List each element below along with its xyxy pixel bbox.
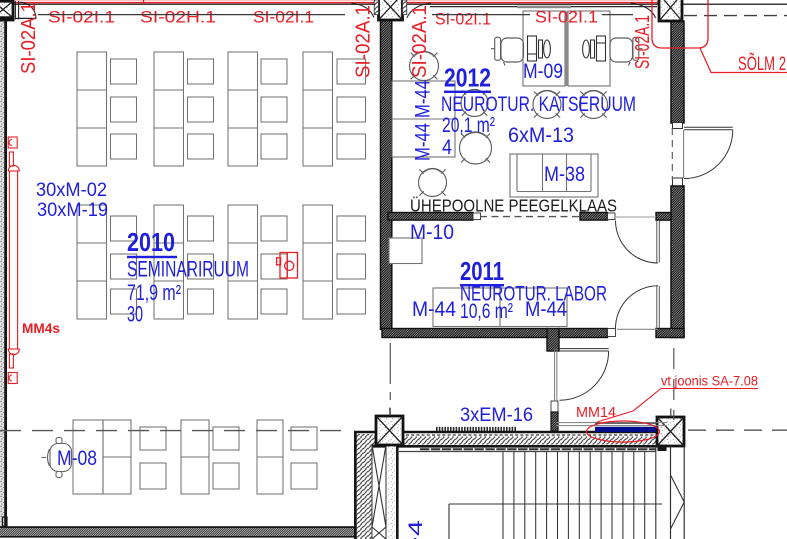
svg-text:vt joonis SA-7.08: vt joonis SA-7.08: [661, 374, 758, 389]
svg-text:6xM-13: 6xM-13: [508, 124, 574, 147]
svg-text:SI-02I.1: SI-02I.1: [48, 8, 115, 26]
svg-text:M-38: M-38: [544, 163, 585, 186]
svg-text:MM14: MM14: [576, 405, 616, 421]
svg-text:4: 4: [406, 519, 427, 536]
svg-text:M-08: M-08: [57, 447, 97, 470]
svg-text:3xEM-16: 3xEM-16: [460, 404, 533, 426]
svg-text:M-09: M-09: [523, 60, 563, 83]
svg-text:SI-02H.1: SI-02H.1: [140, 8, 216, 26]
svg-text:M-44: M-44: [412, 80, 435, 118]
svg-text:20,1 m²: 20,1 m²: [442, 114, 495, 137]
svg-text:NEUROTUR. KATSERUUM: NEUROTUR. KATSERUUM: [441, 93, 636, 116]
svg-text:30xM-19: 30xM-19: [37, 199, 108, 221]
svg-text:M-44: M-44: [412, 298, 456, 321]
svg-text:ÜHEPOOLNE PEEGELKLAAS: ÜHEPOOLNE PEEGELKLAAS: [410, 196, 617, 216]
svg-text:30xM-02: 30xM-02: [36, 179, 107, 201]
svg-text:SÕLM 2: SÕLM 2: [738, 53, 786, 75]
svg-text:M-44: M-44: [525, 298, 567, 321]
svg-text:M-10: M-10: [410, 221, 454, 244]
svg-text:SEMINARIRUUM: SEMINARIRUUM: [127, 257, 249, 282]
svg-text:SI-02A.1: SI-02A.1: [409, 5, 431, 78]
svg-text:SI-02I.1: SI-02I.1: [253, 8, 314, 26]
svg-text:SI-02A.1: SI-02A.1: [353, 5, 375, 78]
svg-text:M-44: M-44: [412, 123, 435, 161]
svg-text:SI-02A.1: SI-02A.1: [632, 15, 654, 69]
svg-text:2010: 2010: [127, 227, 175, 257]
svg-text:30: 30: [127, 302, 143, 327]
svg-text:2012: 2012: [444, 63, 491, 93]
svg-text:MM4s: MM4s: [22, 320, 60, 336]
svg-text:SI-02I.1: SI-02I.1: [535, 8, 598, 26]
svg-text:10,6 m²: 10,6 m²: [460, 300, 513, 323]
svg-text:2011: 2011: [460, 256, 504, 286]
svg-text:4: 4: [442, 136, 452, 159]
svg-text:SI-02A.1: SI-02A.1: [18, 2, 40, 74]
svg-text:SI-02I.1: SI-02I.1: [435, 11, 491, 29]
